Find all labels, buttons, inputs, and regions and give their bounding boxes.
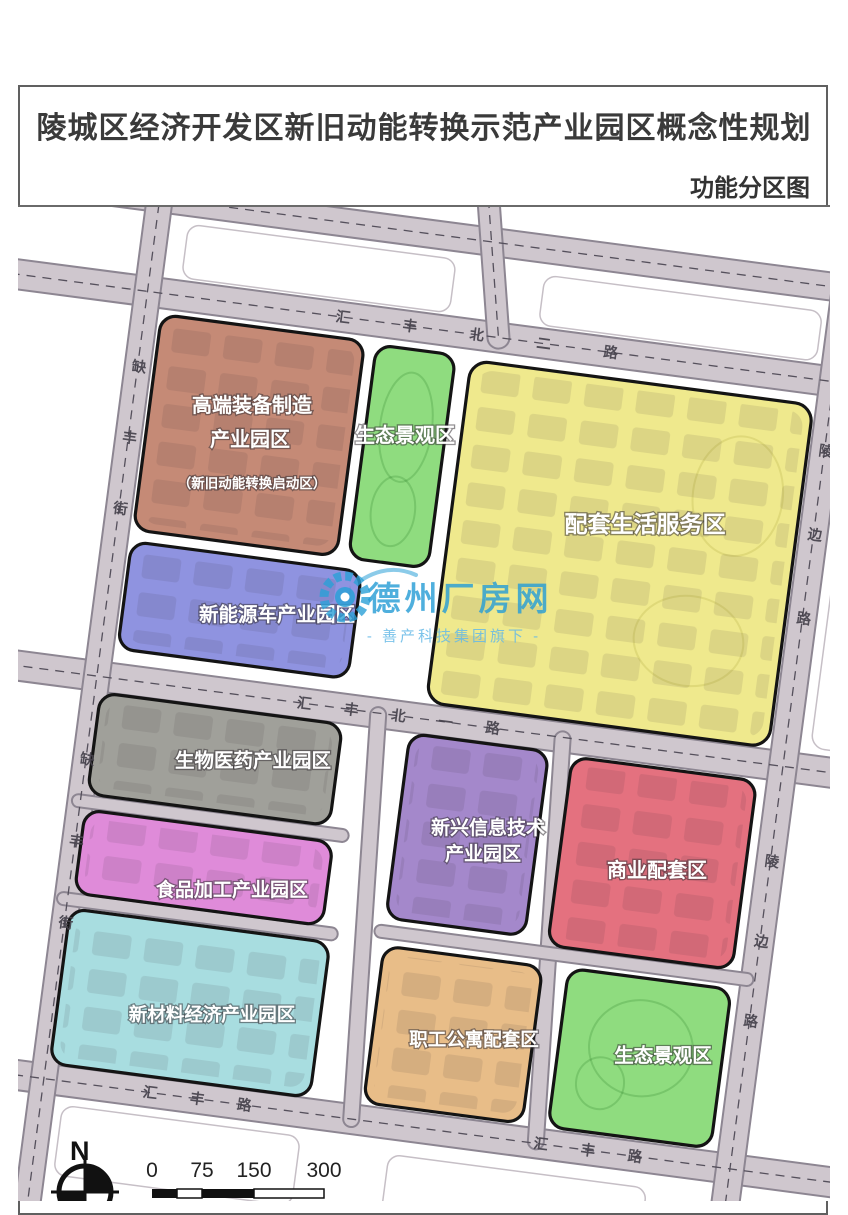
scale-tick-150: 150 bbox=[236, 1159, 271, 1182]
scale-tick-75: 75 bbox=[190, 1159, 213, 1182]
zone-equipment-label-sub: （新旧动能转换启动区） bbox=[178, 475, 327, 491]
compass-north-label: N bbox=[70, 1136, 90, 1166]
map-subtitle: 功能分区图 bbox=[690, 168, 810, 203]
zone-new-material-label: 新材料经济产业园区 bbox=[129, 1004, 296, 1025]
scale-segment bbox=[202, 1189, 254, 1198]
gear-icon-center bbox=[341, 593, 350, 602]
watermark-tagline: - 善产科技集团旗下 - bbox=[367, 628, 541, 645]
zone-life-service-label: 配套生活服务区 bbox=[565, 511, 726, 537]
compass-quadrant bbox=[59, 1192, 85, 1201]
scale-segment bbox=[177, 1189, 202, 1198]
watermark-brand: 德州厂房网 bbox=[368, 580, 553, 617]
zone-eco-north bbox=[348, 345, 455, 569]
zone-equipment-label-line2: 产业园区 bbox=[210, 427, 290, 451]
zone-biomedicine-label: 生物医药产业园区 bbox=[175, 749, 331, 772]
plan-sheet: 陵城区经济开发区新旧动能转换示范产业园区概念性规划 功能分区图 bbox=[0, 0, 848, 1199]
zoning-map-svg: 汇丰北二路 汇丰北一路 汇丰路 汇丰路 缺丰街 缺丰街 陵边路 陵边路 高端装备… bbox=[18, 207, 830, 1201]
zone-food-processing-label: 食品加工产业园区 bbox=[156, 878, 308, 901]
scale-segment bbox=[254, 1189, 324, 1198]
zone-staff-apartment-label: 职工公寓配套区 bbox=[409, 1029, 539, 1050]
watermark: 德州厂房网 - 善产科技集团旗下 - bbox=[324, 570, 553, 645]
swoosh-icon bbox=[363, 570, 416, 579]
zone-new-it-label-line2: 产业园区 bbox=[445, 842, 521, 865]
scale-segment bbox=[152, 1189, 177, 1198]
scale-tick-0: 0 bbox=[146, 1159, 158, 1182]
zone-commercial-label: 商业配套区 bbox=[607, 858, 707, 882]
zoning-map: 汇丰北二路 汇丰北一路 汇丰路 汇丰路 缺丰街 缺丰街 陵边路 陵边路 高端装备… bbox=[18, 205, 830, 1201]
zone-equipment-label-line1: 高端装备制造 bbox=[192, 393, 313, 417]
zone-eco-south-label: 生态景观区 bbox=[614, 1044, 712, 1067]
map-title: 陵城区经济开发区新旧动能转换示范产业园区概念性规划 bbox=[18, 103, 830, 147]
zone-eco-north-label: 生态景观区 bbox=[355, 423, 455, 447]
scale-tick-300: 300 bbox=[306, 1159, 341, 1182]
zone-new-it-label-line1: 新兴信息技术 bbox=[431, 816, 545, 839]
